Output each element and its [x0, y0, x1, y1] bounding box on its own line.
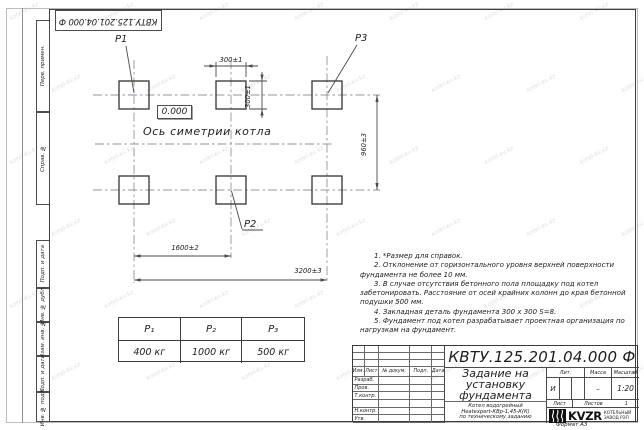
document-subtitle: Котел водогрейный Heatexpert-КВр-1,45-К(…	[445, 401, 547, 423]
cell	[410, 377, 432, 385]
pad-label-p2: P2	[244, 219, 256, 230]
cell	[432, 377, 444, 385]
load-table-value-p1: 400 кг	[119, 341, 181, 363]
col-header-podp: Подп.	[410, 367, 432, 377]
cell	[353, 360, 365, 367]
cell	[379, 385, 411, 393]
foundation-pads	[119, 81, 342, 204]
col-header-dokum: № докум.	[379, 367, 411, 377]
load-table-header-p3: P₃	[242, 318, 304, 341]
document-designation: КВТУ.125.201.04.000 Ф	[445, 346, 639, 368]
lit-value: И	[547, 378, 560, 400]
cell	[410, 415, 432, 423]
load-table-header-p2: P₂	[181, 318, 243, 341]
cell	[379, 346, 411, 353]
mass-header: Масса	[585, 368, 612, 378]
note-2: 2. Отклонение от горизонтального уровня …	[360, 261, 630, 280]
cell	[432, 400, 444, 408]
kvzr-logo-icon	[549, 409, 566, 423]
signature-row: Н.контр.	[353, 408, 444, 416]
note-5: 5. Фундамент под котел разрабатывает про…	[360, 317, 630, 336]
notes-block: 1. *Размер для справок. 2. Отклонение от…	[360, 252, 630, 336]
load-table-value-p3: 500 кг	[242, 341, 304, 363]
revision-spare-row	[353, 353, 444, 360]
drawing-sheet: kotel-kv.kzkotel-kv.kzkotel-kv.kzkotel-k…	[0, 0, 644, 430]
cell	[379, 400, 411, 408]
signature-row: Утв.	[353, 415, 444, 423]
lit-cell-2	[560, 378, 572, 400]
revision-header-row: Изм. Лист № докум. Подп. Дата	[353, 367, 444, 377]
symmetry-axis-label: Ось симетрии котла	[143, 125, 272, 138]
note-3: 3. В случае отсутствия бетонного пола пл…	[360, 280, 630, 308]
cell	[432, 415, 444, 423]
cell	[365, 346, 379, 353]
col-header-izm: Изм.	[353, 367, 365, 377]
dim-span-half: 1600±2	[167, 244, 203, 252]
cell	[432, 353, 444, 360]
revision-table: Изм. Лист № докум. Подп. Дата Разраб. Пр…	[353, 346, 445, 423]
cell	[379, 408, 411, 416]
cell	[365, 353, 379, 360]
sheets-cell: Листов 1	[573, 400, 639, 408]
title-block: Изм. Лист № докум. Подп. Дата Разраб. Пр…	[352, 345, 638, 422]
pad-label-p3: P3	[355, 33, 367, 44]
sheets-label: Листов	[584, 401, 603, 407]
cell	[379, 377, 411, 385]
sheet-cell: Лист	[547, 400, 573, 408]
dim-pad-width: 300±1	[213, 56, 249, 64]
load-table-header-p1: P₁	[119, 318, 181, 341]
cell	[379, 415, 411, 423]
revision-spare-row	[353, 360, 444, 367]
elevation-mark: 0.000	[157, 105, 192, 119]
col-header-list: Лист	[365, 367, 379, 377]
cell	[410, 400, 432, 408]
title-line: фундамента	[459, 390, 532, 401]
cell	[432, 346, 444, 353]
format-label: Формат А3	[556, 422, 587, 428]
cell	[379, 392, 411, 400]
col-header-data: Дата	[432, 367, 444, 377]
signature-row: Т.контр.	[353, 392, 444, 400]
scale-header: Масштаб	[612, 368, 639, 378]
pad-label-p1: P1	[115, 34, 127, 45]
signature-row	[353, 400, 444, 408]
dim-span-full: 3200±3	[288, 267, 328, 275]
signature-row: Разраб.	[353, 377, 444, 385]
row-label-empty	[353, 400, 379, 408]
cell	[365, 360, 379, 367]
row-label-tkontr: Т.контр.	[353, 392, 379, 400]
cell	[353, 346, 365, 353]
signature-row: Пров.	[353, 385, 444, 393]
row-label-nkontr: Н.контр.	[353, 408, 379, 416]
dim-row-spacing: 960±3	[360, 133, 368, 156]
cell	[410, 360, 432, 367]
note-4: 4. Закладная деталь фундамента 300 х 300…	[360, 308, 630, 317]
cell	[353, 353, 365, 360]
subtitle-line: по техническому заданию	[459, 415, 531, 421]
cell	[432, 408, 444, 416]
elevation-value: 0.000	[162, 107, 188, 117]
row-label-prov: Пров.	[353, 385, 379, 393]
cell	[410, 353, 432, 360]
company-name-line: ЗАВОД РЭП	[604, 416, 631, 421]
cell	[410, 392, 432, 400]
cell	[432, 360, 444, 367]
cell	[410, 346, 432, 353]
cell	[432, 392, 444, 400]
revision-spare-row	[353, 346, 444, 353]
load-table: P₁ P₂ P₃ 400 кг 1000 кг 500 кг	[118, 317, 305, 362]
company-logo-text: KVZR	[568, 409, 602, 423]
cell	[410, 408, 432, 416]
company-name: КОТЕЛЬНЫЙ ЗАВОД РЭП	[604, 411, 631, 421]
center-lines	[93, 56, 380, 283]
dim-pad-height: 300±1	[244, 85, 252, 108]
row-label-utv: Утв.	[353, 415, 379, 423]
mass-value: –	[585, 378, 612, 400]
sheets-value: 1	[625, 401, 628, 407]
scale-value: 1:20	[612, 378, 639, 400]
document-title: Задание на установку фундамента	[445, 368, 547, 401]
note-1: 1. *Размер для справок.	[360, 252, 630, 261]
lit-cell-3	[572, 378, 585, 400]
cell	[379, 353, 411, 360]
row-label-razrab: Разраб.	[353, 377, 379, 385]
load-table-value-p2: 1000 кг	[181, 341, 243, 363]
cell	[410, 385, 432, 393]
company-logo-row: KVZR КОТЕЛЬНЫЙ ЗАВОД РЭП	[547, 408, 639, 423]
lit-header: Лит.	[547, 368, 585, 378]
cell	[379, 360, 411, 367]
cell	[432, 385, 444, 393]
